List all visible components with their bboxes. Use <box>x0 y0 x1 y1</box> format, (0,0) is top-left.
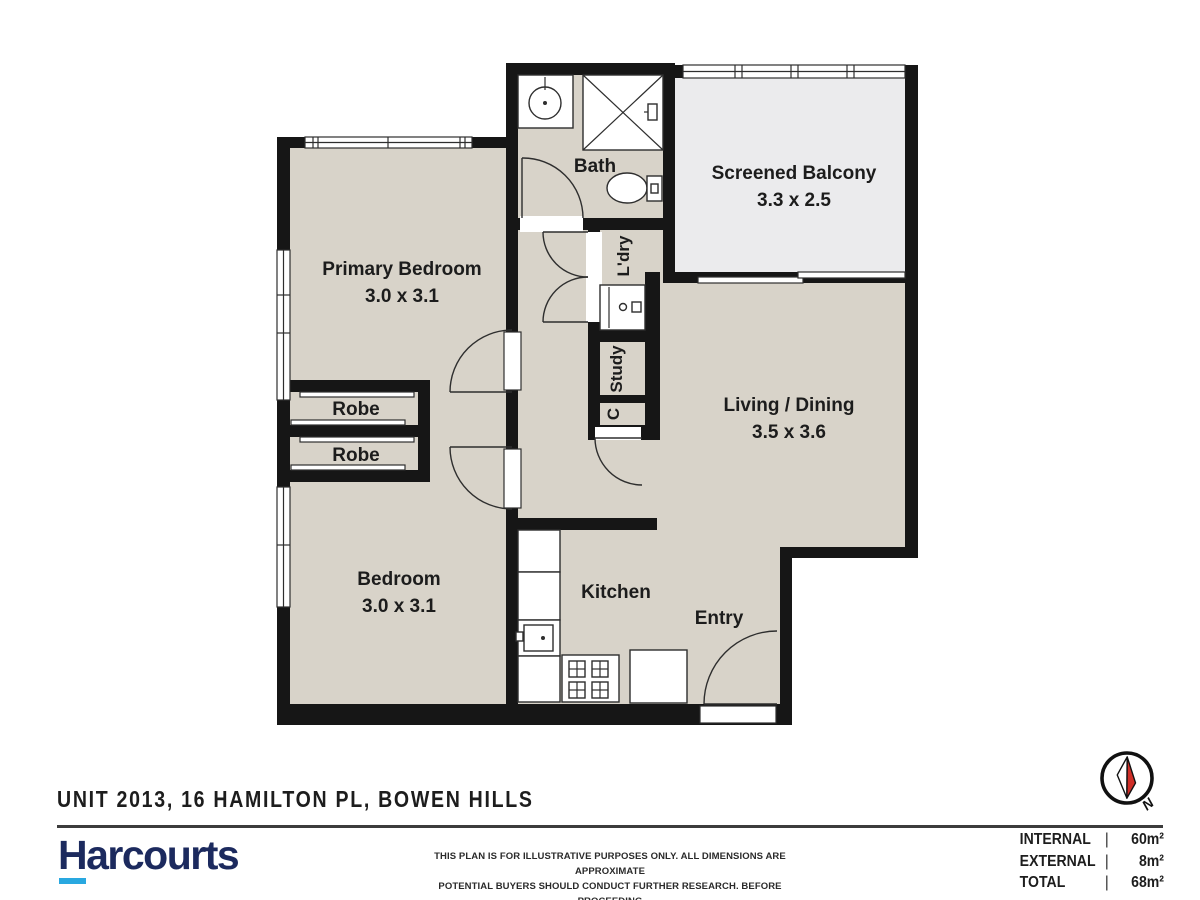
entry-label: Entry <box>695 608 744 629</box>
bath-label: Bath <box>574 156 616 177</box>
divider-rule <box>57 825 1163 828</box>
cupboard-label: C <box>604 408 623 420</box>
area-row-label: INTERNAL <box>1020 831 1101 853</box>
compass-icon: N <box>1094 746 1166 818</box>
sliding-door-leaf <box>798 272 905 278</box>
area-row-label: EXTERNAL <box>1020 853 1101 875</box>
sliding-door-leaf <box>698 277 803 283</box>
area-row-label: TOTAL <box>1020 874 1101 896</box>
living-dining-dims: 3.5 x 3.6 <box>752 422 826 443</box>
appliance <box>630 650 687 703</box>
area-row-value: 8m² <box>1113 853 1164 875</box>
disclaimer: THIS PLAN IS FOR ILLUSTRATIVE PURPOSES O… <box>415 849 805 900</box>
washing-machine <box>600 285 645 330</box>
robe1-label: Robe <box>332 399 380 420</box>
burner <box>569 682 585 698</box>
disclaimer-line1: THIS PLAN IS FOR ILLUSTRATIVE PURPOSES O… <box>415 849 805 879</box>
balcony-dims: 3.3 x 2.5 <box>757 190 831 211</box>
area-row-value: 60m² <box>1113 831 1164 853</box>
laundry-label: L'dry <box>614 235 633 276</box>
area-row-sep: | <box>1101 831 1113 853</box>
bedroom-label: Bedroom <box>357 569 440 590</box>
primary-bedroom-label: Primary Bedroom <box>322 259 481 280</box>
area-row-sep: | <box>1101 874 1113 896</box>
kitchen-label: Kitchen <box>581 582 651 603</box>
toilet <box>607 173 662 203</box>
kitchen-bench <box>516 530 560 702</box>
living-dining-label: Living / Dining <box>724 395 855 416</box>
burner <box>592 661 608 677</box>
area-row-value: 68m² <box>1113 874 1164 896</box>
balcony-label: Screened Balcony <box>712 163 877 184</box>
harcourts-underline <box>59 878 86 884</box>
shower <box>583 75 663 150</box>
bedroom-dims: 3.0 x 3.1 <box>362 596 436 617</box>
burner <box>592 682 608 698</box>
study-label: Study <box>607 345 626 393</box>
disclaimer-line2: POTENTIAL BUYERS SHOULD CONDUCT FURTHER … <box>415 879 805 900</box>
cooktop <box>562 655 619 702</box>
area-row-sep: | <box>1101 853 1113 875</box>
area-table: INTERNAL | 60m² EXTERNAL | 8m² TOTAL | 6… <box>1020 831 1164 896</box>
harcourts-wordmark: Harcourts <box>58 833 238 878</box>
primary-bedroom-dims: 3.0 x 3.1 <box>365 286 439 307</box>
burner <box>569 661 585 677</box>
floor-plan: Bath Screened Balcony 3.3 x 2.5 Primary … <box>0 0 1200 740</box>
robe2-label: Robe <box>332 445 380 466</box>
harcourts-logo: Harcourts <box>58 833 238 878</box>
floor-plan-page: Bath Screened Balcony 3.3 x 2.5 Primary … <box>0 0 1200 900</box>
page-title: UNIT 2013, 16 HAMILTON PL, BOWEN HILLS <box>57 786 534 813</box>
vanity-basin <box>518 75 573 128</box>
